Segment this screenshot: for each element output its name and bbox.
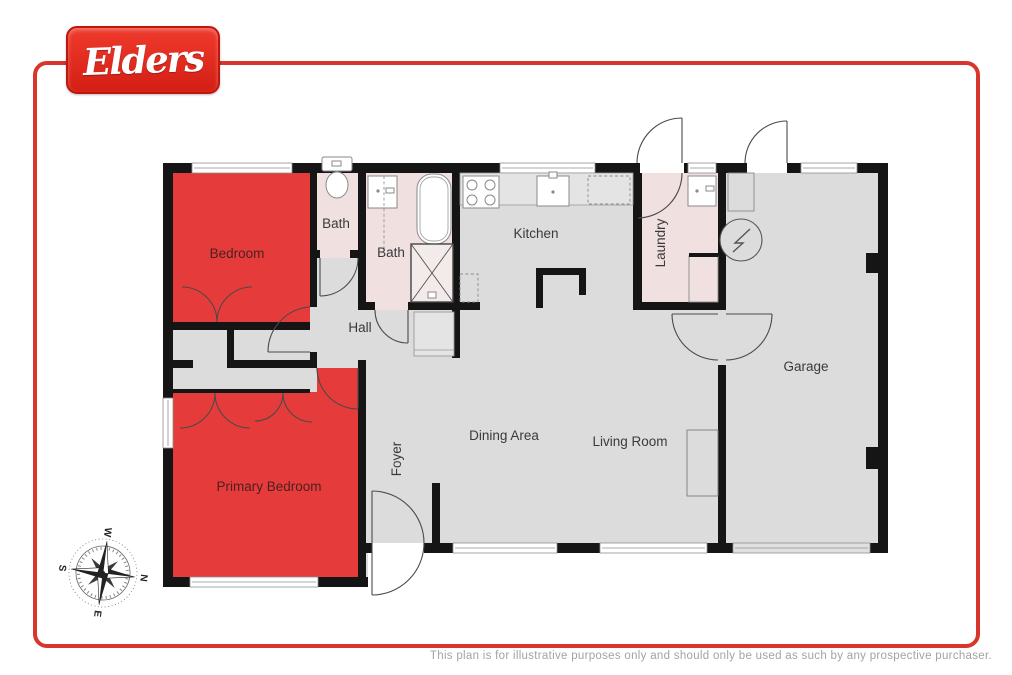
room-label-bedroom: Bedroom (210, 246, 265, 261)
room-label-laundry: Laundry (653, 218, 668, 267)
window (600, 543, 707, 553)
floor-plan-page: Elders (0, 0, 1012, 675)
window (688, 163, 716, 173)
kitchen-sink-icon (537, 172, 569, 206)
window (192, 163, 292, 173)
room-label-bath2: Bath (377, 245, 405, 260)
window (500, 163, 595, 173)
shower-icon (411, 244, 453, 302)
compass-north-label: N (137, 574, 149, 583)
disclaimer-text: This plan is for illustrative purposes o… (430, 650, 992, 662)
room-label-primary-bedroom: Primary Bedroom (216, 479, 321, 494)
room-label-garage: Garage (783, 359, 828, 374)
room-label-hall: Hall (348, 320, 371, 335)
window (190, 577, 318, 587)
room-label-foyer: Foyer (389, 441, 404, 476)
compass-east-label: E (91, 610, 103, 618)
room-label-kitchen: Kitchen (513, 226, 558, 241)
bathtub-icon (417, 174, 451, 244)
window (163, 398, 173, 448)
compass-rose-icon: N E S W (51, 522, 154, 623)
water-heater-icon (720, 219, 762, 261)
compass-south-label: S (56, 564, 68, 572)
room-label-living: Living Room (592, 434, 667, 449)
laundry-sink-icon (688, 176, 716, 206)
window (801, 163, 857, 173)
garage-exterior-door (745, 121, 787, 163)
compass-west-label: W (101, 527, 113, 538)
room-label-dining: Dining Area (469, 428, 539, 443)
floor-plan: Bedroom Bath Bath Hall Kitchen Laundry G… (0, 0, 1012, 675)
hall-cupboard (414, 312, 454, 356)
room-label-bath1: Bath (322, 216, 350, 231)
living-cupboard (687, 430, 718, 496)
laundry-exterior-door (637, 118, 682, 163)
stove-icon (463, 176, 499, 208)
garage-bench (728, 173, 754, 211)
window (453, 543, 557, 553)
garage-door (733, 543, 870, 553)
room-fill-primary-bedroom (172, 368, 358, 577)
